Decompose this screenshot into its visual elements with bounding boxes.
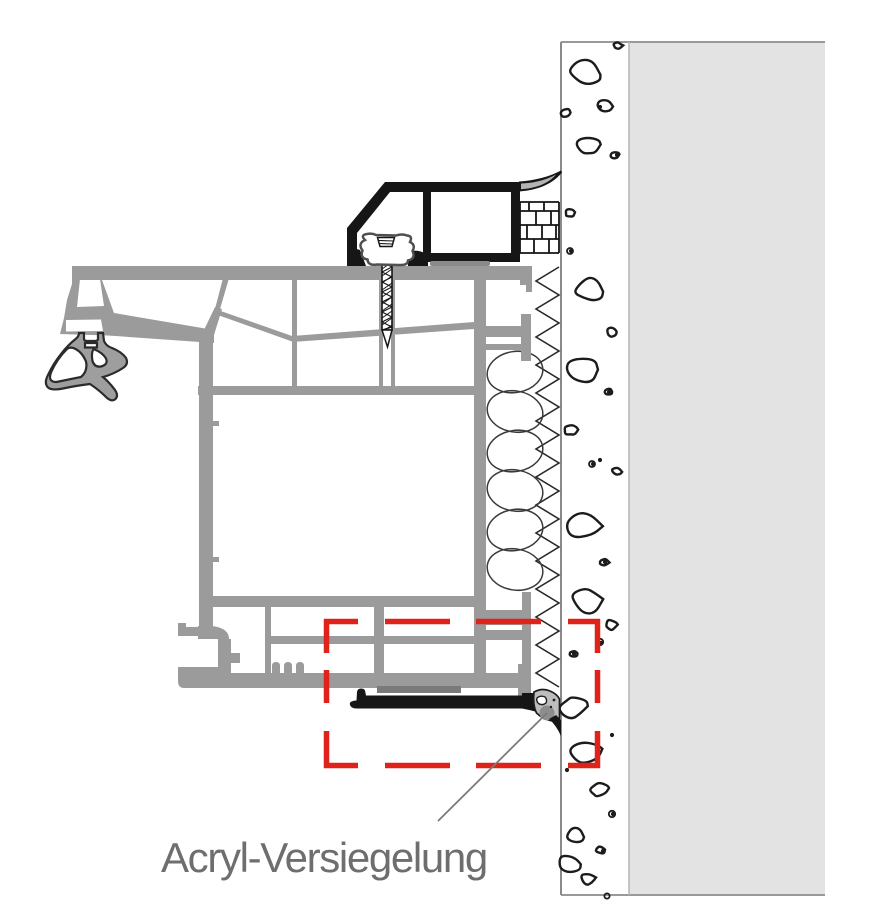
svg-text:Acryl-Versiegelung: Acryl-Versiegelung — [161, 834, 487, 881]
